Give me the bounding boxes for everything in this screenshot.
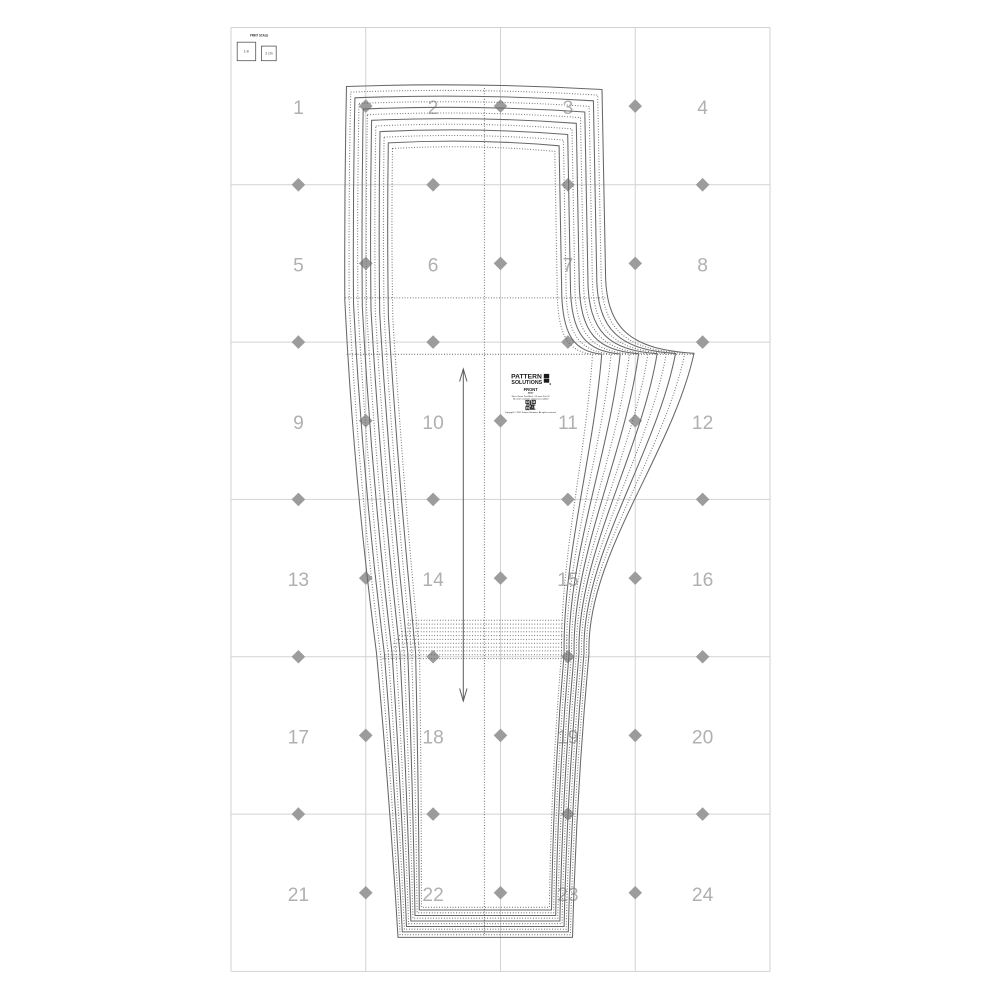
svg-text:22: 22 (422, 885, 443, 906)
svg-text:20: 20 (692, 727, 713, 748)
svg-text:12: 12 (692, 413, 713, 434)
svg-text:16: 16 (692, 570, 713, 591)
svg-text:17: 17 (288, 727, 309, 748)
svg-text:10: 10 (422, 413, 443, 434)
svg-text:3: 3 (563, 98, 574, 119)
svg-text:14: 14 (422, 570, 444, 591)
svg-text:SOLUTIONS: SOLUTIONS (511, 380, 542, 386)
svg-text:4: 4 (697, 98, 708, 119)
svg-text:9: 9 (293, 413, 304, 434)
svg-text:1: 1 (293, 98, 304, 119)
svg-text:2 cm: 2 cm (265, 51, 272, 55)
svg-text:24: 24 (692, 885, 714, 906)
svg-text:1 in: 1 in (244, 50, 249, 54)
svg-text:5: 5 (293, 255, 304, 276)
svg-text:11: 11 (558, 413, 578, 434)
svg-text:PRINT SCALE: PRINT SCALE (250, 34, 268, 38)
svg-text:No seam and hem allowances add: No seam and hem allowances added (513, 398, 549, 400)
svg-text:21: 21 (288, 885, 309, 906)
svg-text:8: 8 (697, 255, 708, 276)
svg-text:ADULT: ADULT (528, 392, 534, 395)
svg-text:Copyright © 2022 Pattern Solut: Copyright © 2022 Pattern Solutions. All … (505, 411, 557, 414)
svg-text:7: 7 (563, 255, 574, 276)
svg-text:13: 13 (288, 570, 309, 591)
svg-text:6: 6 (428, 255, 439, 276)
svg-text:18: 18 (422, 727, 443, 748)
svg-text:FRONT: FRONT (524, 387, 539, 392)
